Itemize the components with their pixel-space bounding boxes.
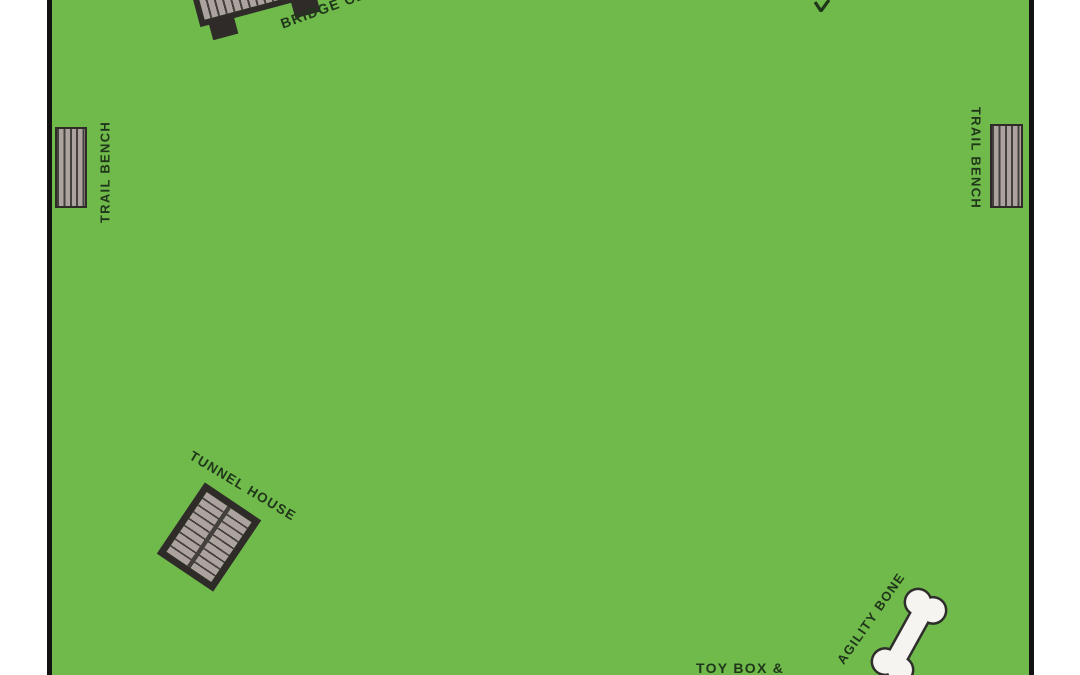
trail-bench-right-icon [990,124,1023,208]
trail-bench-right-label: TRAIL BENCH [970,107,983,209]
trail-bench-left-icon [55,127,87,208]
agility-bone-icon [846,571,976,675]
park-map: BRIDGE CLIMB TRAIL BENCH TRAIL BENCH TUN… [0,0,1080,675]
cropped-label-fragment-icon [812,0,836,12]
trail-bench-left-label: TRAIL BENCH [99,121,112,223]
toy-box-label: TOY BOX & [696,661,784,675]
